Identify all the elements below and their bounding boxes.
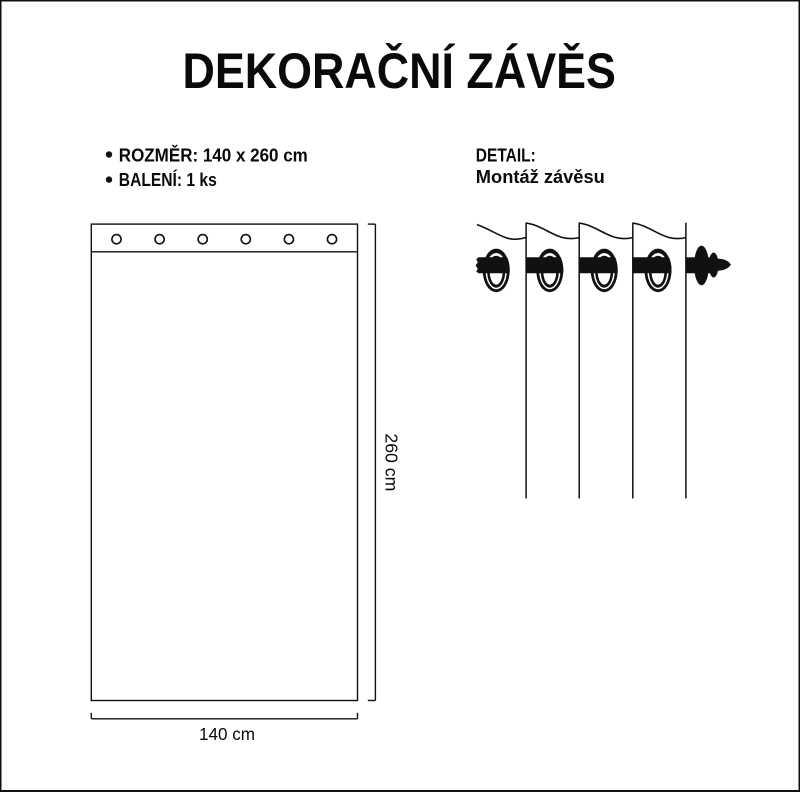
- svg-text:Montáž závěsu: Montáž závěsu: [476, 167, 605, 187]
- svg-text:260 cm: 260 cm: [381, 433, 401, 491]
- svg-text:BALENÍ: 1 ks: BALENÍ: 1 ks: [119, 169, 217, 190]
- svg-text:DEKORAČNÍ ZÁVĚS: DEKORAČNÍ ZÁVĚS: [182, 42, 616, 99]
- svg-text:ROZMĚR: 140 x 260 cm: ROZMĚR: 140 x 260 cm: [119, 144, 308, 165]
- svg-text:140 cm: 140 cm: [199, 724, 255, 744]
- svg-text:DETAIL:: DETAIL:: [476, 145, 536, 165]
